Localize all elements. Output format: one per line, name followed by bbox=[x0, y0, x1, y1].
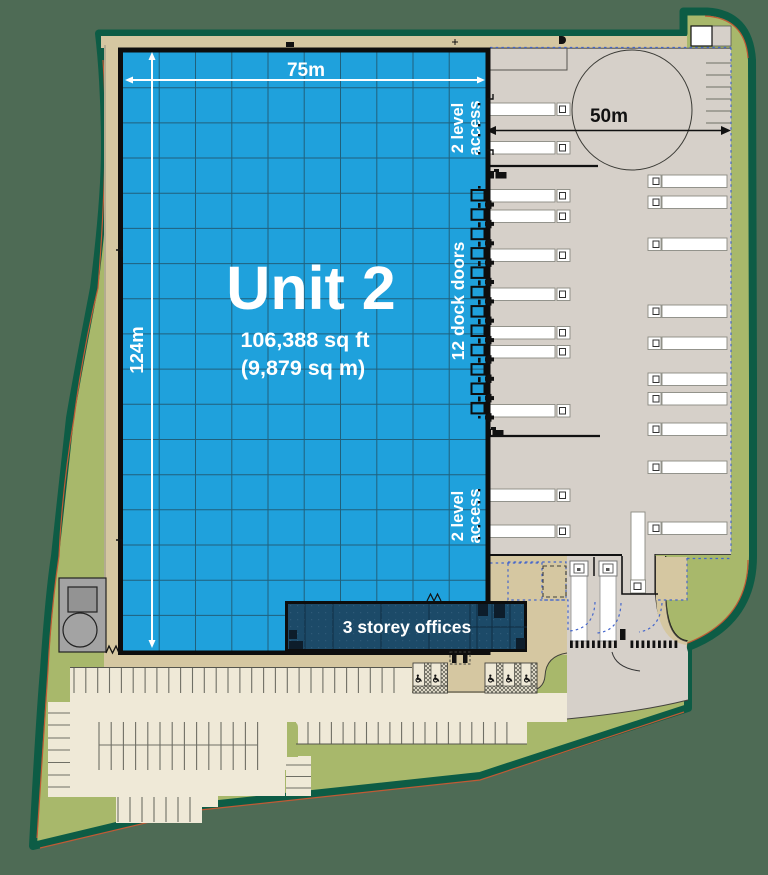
svg-text:(9,879 sq m): (9,879 sq m) bbox=[241, 356, 365, 380]
svg-text:106,388 sq ft: 106,388 sq ft bbox=[240, 328, 369, 352]
svg-text:50m: 50m bbox=[590, 106, 628, 127]
svg-text:75m: 75m bbox=[287, 60, 325, 81]
svg-text:access: access bbox=[466, 100, 484, 155]
svg-text:3 storey offices: 3 storey offices bbox=[343, 617, 472, 637]
svg-text:access: access bbox=[466, 488, 484, 543]
svg-text:12 dock doors: 12 dock doors bbox=[448, 241, 468, 360]
svg-text:2 level: 2 level bbox=[449, 491, 467, 541]
svg-text:124m: 124m bbox=[126, 326, 147, 373]
svg-text:Unit 2: Unit 2 bbox=[226, 254, 395, 322]
svg-text:2 level: 2 level bbox=[449, 103, 467, 153]
